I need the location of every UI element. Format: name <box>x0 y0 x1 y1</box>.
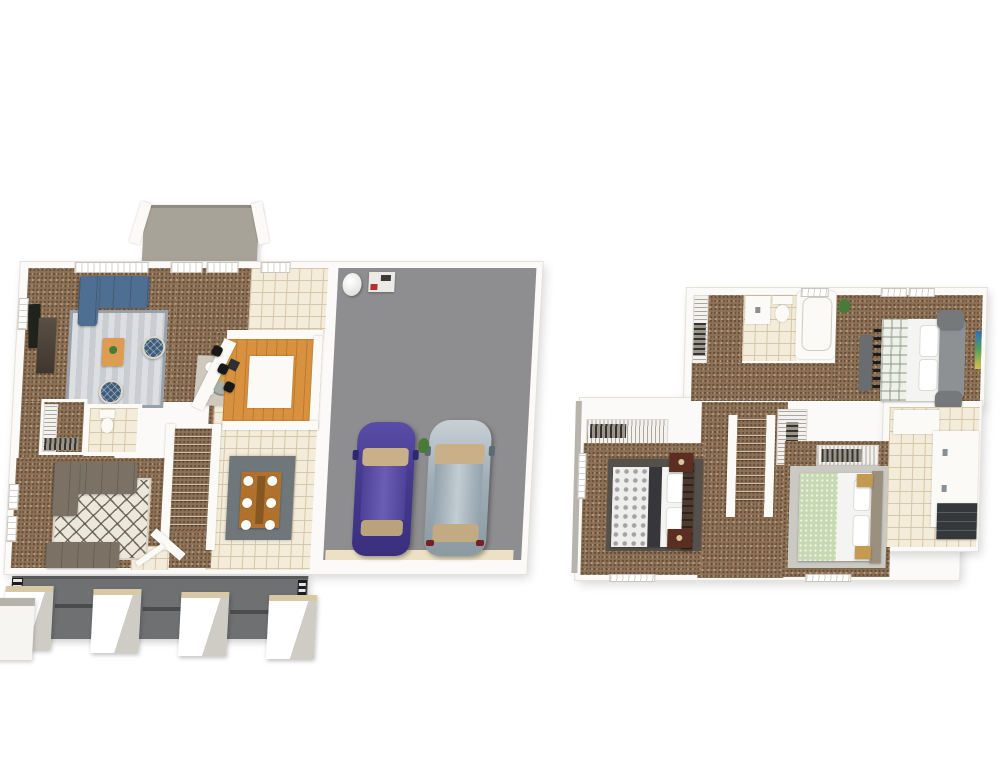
purple-car-rear-window <box>360 520 403 536</box>
vanity-faucet-1 <box>942 449 947 456</box>
bathroom-window <box>801 288 829 297</box>
purple-car-mirror-right <box>412 450 419 460</box>
living-room-window <box>74 262 149 273</box>
bedroom2-bottom-window <box>609 574 655 582</box>
master-bench <box>858 335 872 391</box>
garage-plant <box>418 438 430 453</box>
toilet-tank-2f <box>772 296 792 304</box>
master-window-1 <box>881 288 907 297</box>
nightstand-lamp <box>678 459 684 465</box>
bedroom3-green-blanket <box>798 473 838 561</box>
vanity-faucet <box>755 307 760 313</box>
furnace-panel <box>381 275 391 281</box>
upper-hallway-floor <box>691 363 835 401</box>
purple-car-mirror-left <box>352 450 359 460</box>
kitchen-island <box>247 356 294 408</box>
wall-tv <box>975 331 982 369</box>
bedroom3-closet-shelf <box>816 445 879 466</box>
master-bolster-top <box>937 310 964 329</box>
nightstand-lamp <box>676 535 682 541</box>
master-plant <box>838 299 850 313</box>
nook-window-1 <box>170 262 203 273</box>
bedroom2-nightstand-1 <box>669 453 693 472</box>
furnace-red-accent <box>370 284 377 290</box>
stairwell-treads <box>735 419 766 503</box>
family-room-window-1 <box>8 484 19 510</box>
bedroom2-nightstand-2 <box>667 529 691 548</box>
first-floor-plan <box>0 200 560 662</box>
hall-bath-dark-cabinet <box>936 503 977 539</box>
bedroom3-nightstand-2 <box>855 546 871 559</box>
walk-in-closet-clothes <box>693 323 706 355</box>
master-plaid-blanket <box>880 319 908 401</box>
silver-car-windshield <box>434 444 485 464</box>
closet-hanging-clothes <box>44 438 79 450</box>
floor-plan-canvas <box>0 0 1000 760</box>
bedroom3-nightstand-1 <box>857 474 873 487</box>
bathtub <box>795 291 837 359</box>
porch-cross-rail-2 <box>142 607 182 611</box>
kitchen-counter-top <box>227 330 323 339</box>
master-pillow-1 <box>919 325 939 357</box>
purple-car-roof <box>360 466 407 520</box>
deck <box>142 205 260 266</box>
gray-sectional-chaise <box>51 462 80 516</box>
master-window-2 <box>909 288 935 297</box>
bedroom3-bottom-window <box>805 574 851 582</box>
toilet-tank <box>100 410 115 418</box>
purple-car-windshield <box>362 448 409 466</box>
breakfast-area-floor <box>248 268 328 334</box>
bedroom3-pillow-2 <box>852 515 870 547</box>
deck-door <box>260 262 291 273</box>
bathroom-vanity <box>745 296 771 324</box>
furnace-unit <box>368 272 395 292</box>
bedroom2-patterned-blanket <box>611 467 649 547</box>
silver-car-roof <box>432 464 483 524</box>
family-room-window-2 <box>6 516 17 542</box>
walk-in-closet-floor <box>692 295 744 369</box>
bedroom3-closet-clothes <box>821 449 861 462</box>
second-floor-plan <box>567 283 995 583</box>
bedroom2-closet-clothes <box>590 424 626 438</box>
staircase-treads <box>170 428 212 530</box>
silver-car-mirror-right <box>489 446 496 456</box>
bedroom2-window <box>577 453 586 499</box>
silver-car-rear-window <box>432 524 479 542</box>
silver-car-taillight-right <box>476 540 484 546</box>
kitchen-counter-bottom <box>222 421 318 430</box>
living-room-side-window <box>17 298 29 330</box>
silver-car <box>423 420 492 556</box>
half-bathroom-floor <box>84 404 143 456</box>
bedroom2-dark-throw <box>647 467 662 547</box>
purple-car <box>351 422 416 556</box>
nook-window-2 <box>206 262 239 273</box>
master-headboard <box>938 317 966 401</box>
porch-cross-rail-3 <box>230 610 270 614</box>
tv-console <box>36 318 57 373</box>
blue-sectional-chaise <box>77 276 100 326</box>
bathtub-basin <box>801 297 832 351</box>
silver-car-taillight-left <box>426 540 434 546</box>
master-pillow-2 <box>918 359 938 391</box>
bedroom2-closet-shelf <box>586 419 669 445</box>
porch-pillar-2 <box>90 589 141 653</box>
porch-side-step <box>0 598 35 660</box>
vanity-faucet-2 <box>942 485 947 492</box>
toilet-bowl <box>101 418 114 433</box>
porch-pillar-4 <box>266 595 317 659</box>
gray-loveseat <box>45 542 120 568</box>
porch-pillar-3 <box>178 592 229 656</box>
closet-floor <box>42 402 85 452</box>
first-floor-shell <box>4 262 542 574</box>
porch-cross-rail-1 <box>55 604 95 608</box>
